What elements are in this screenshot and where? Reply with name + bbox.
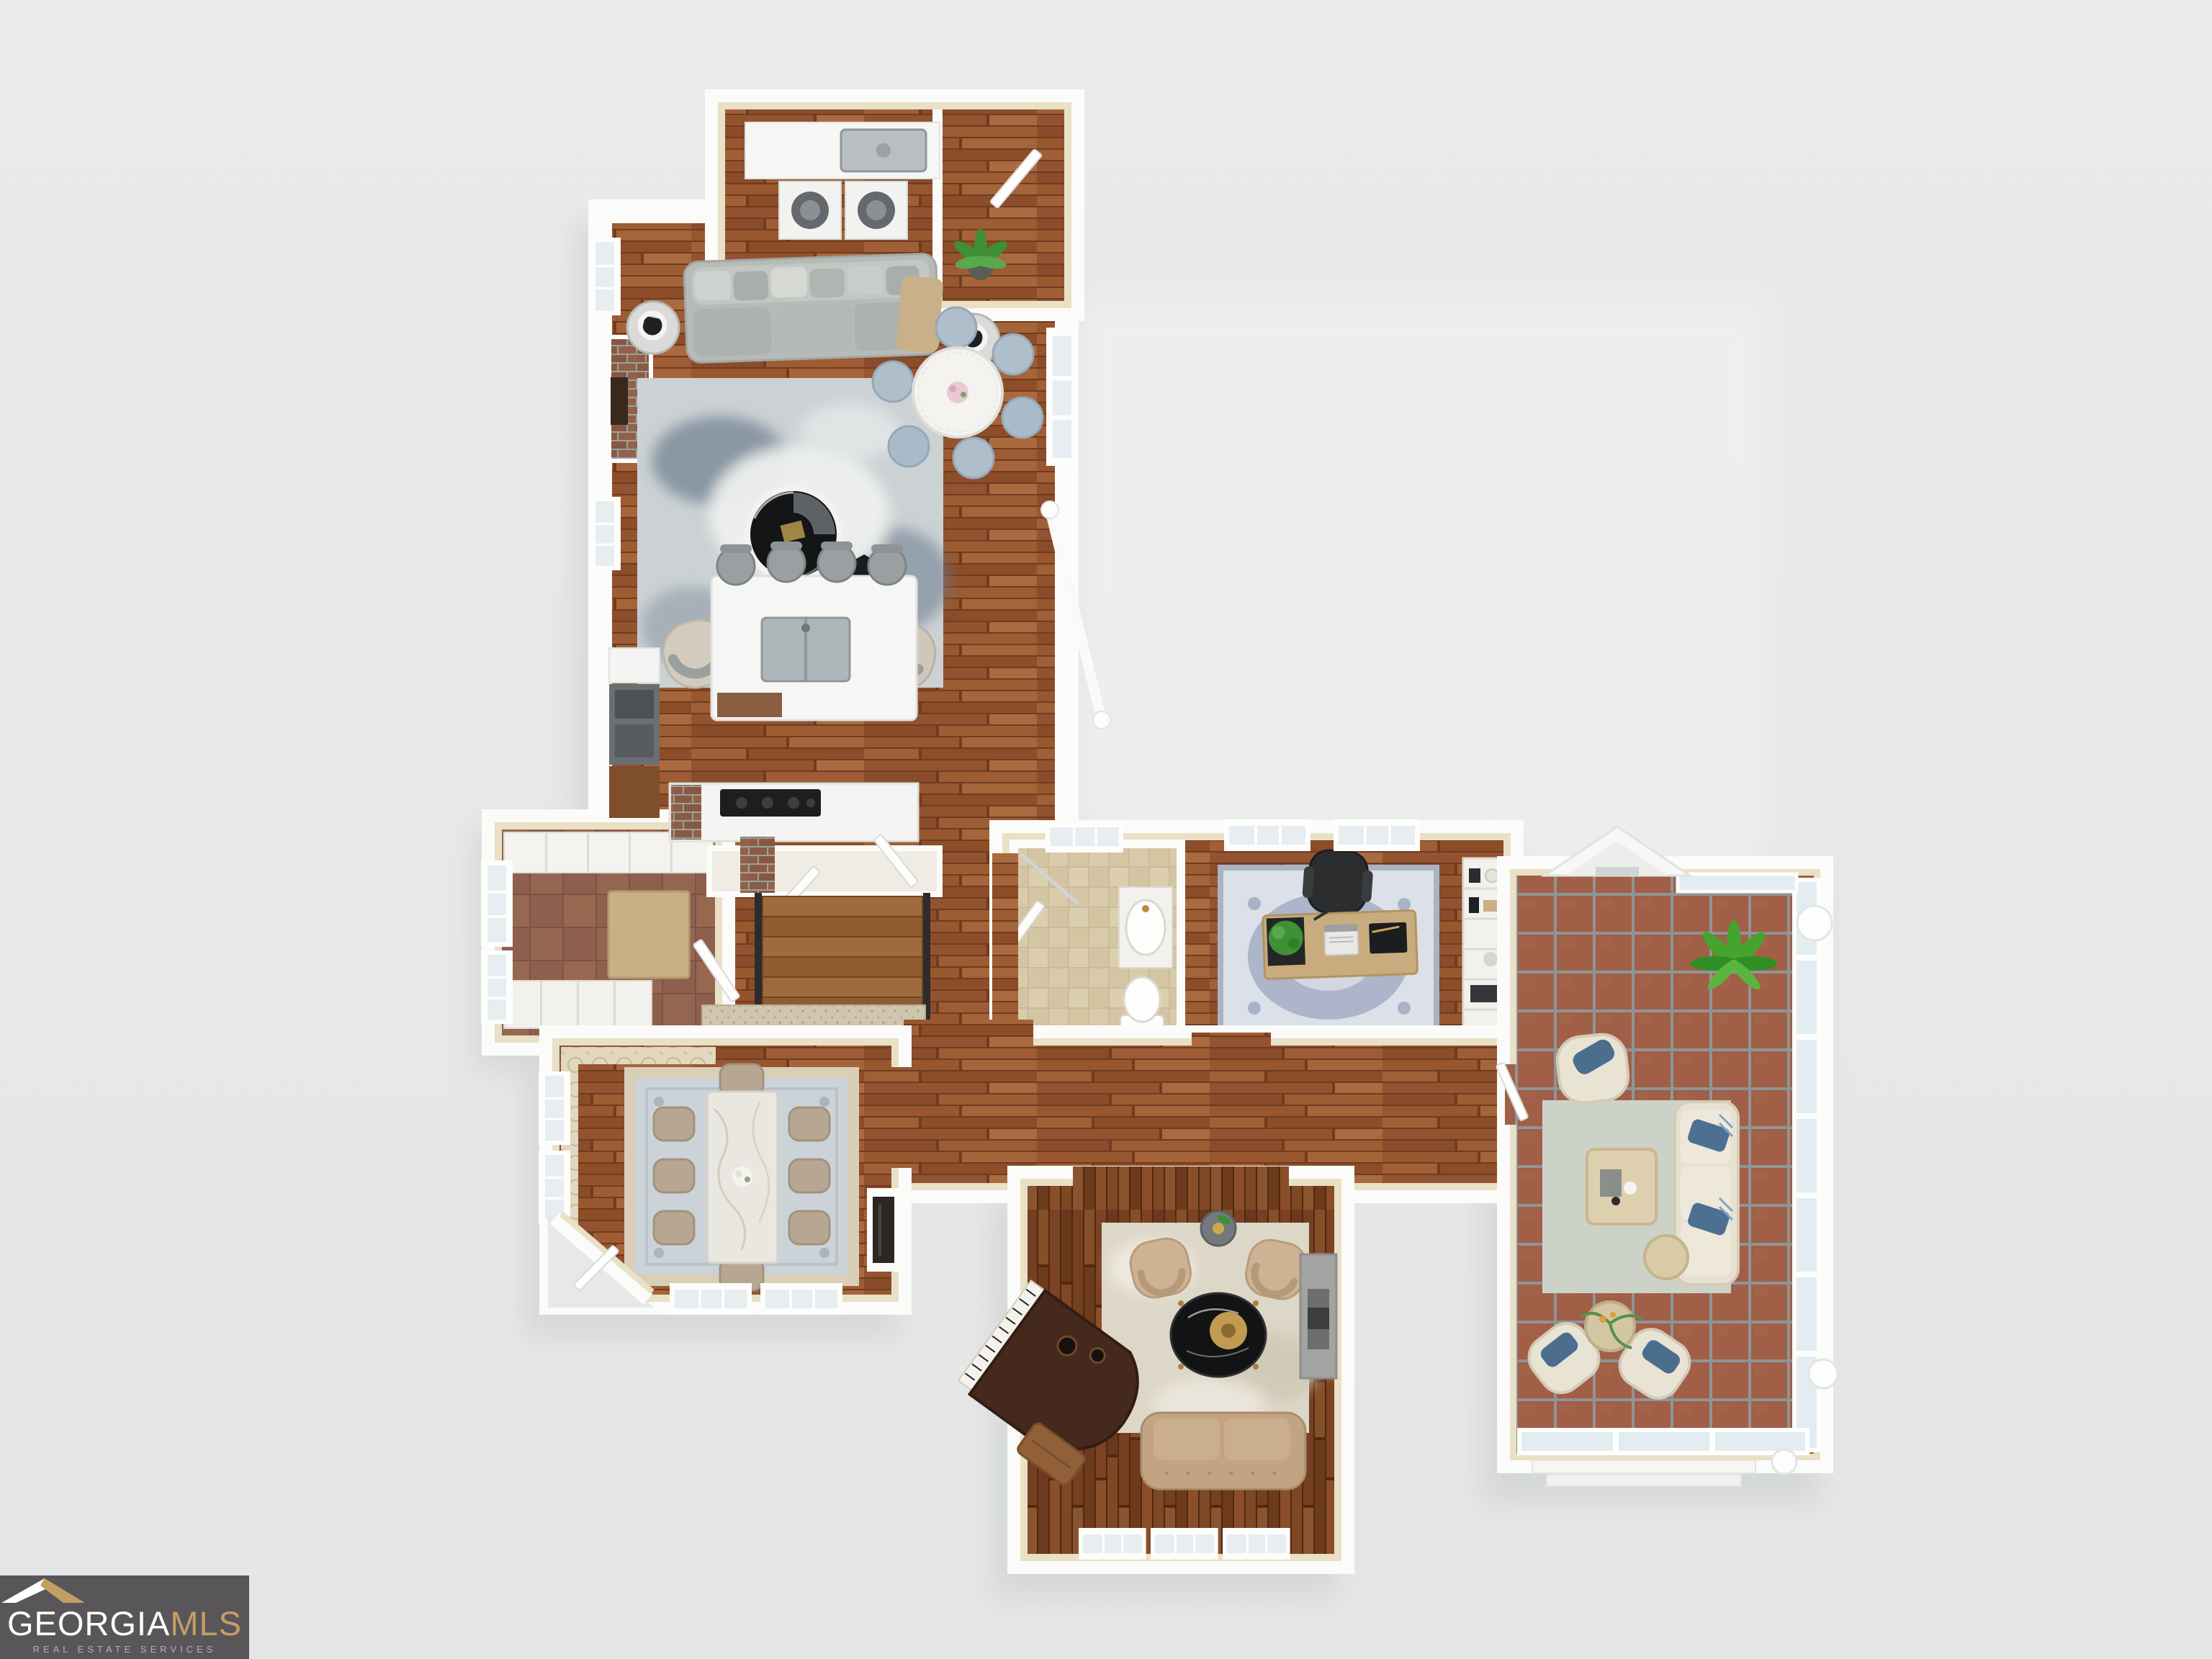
office-window	[1224, 819, 1310, 851]
dining-window	[539, 1151, 570, 1224]
room-music	[956, 1172, 1348, 1568]
dining-fireplace	[867, 1188, 900, 1272]
mudroom-window	[481, 860, 513, 947]
dining-table	[707, 1092, 778, 1263]
stair-brick-wall	[740, 837, 775, 893]
opening-dining-hall	[878, 1067, 914, 1168]
kitchen-island	[711, 576, 917, 720]
brand-line: GEORGIAMLS	[7, 1606, 242, 1640]
lamp-side-table	[627, 302, 679, 354]
music-window-south	[1223, 1528, 1290, 1560]
georgia-mls-watermark: GEORGIAMLS REAL ESTATE SERVICES	[0, 1575, 249, 1659]
mudroom-window	[481, 950, 513, 1024]
bath-window	[1046, 821, 1123, 853]
music-coffee-table	[1171, 1293, 1266, 1377]
laptop	[1324, 924, 1358, 956]
kitchen-counter-south	[670, 783, 918, 841]
washer	[779, 181, 841, 239]
kitchen-wood-cabinet	[609, 766, 660, 818]
dining-centerpiece	[732, 1166, 752, 1187]
sunroom-armchair	[1555, 1032, 1630, 1105]
music-sofa	[1141, 1413, 1305, 1489]
brand-primary: GEORGIA	[7, 1606, 170, 1640]
living-window-right	[1046, 328, 1078, 466]
floor-plan-render: GEORGIAMLS REAL ESTATE SERVICES	[0, 0, 2212, 1659]
music-window-south	[1151, 1528, 1218, 1560]
brand-tagline: REAL ESTATE SERVICES	[33, 1644, 217, 1655]
living-window	[589, 238, 621, 315]
sunroom-steps	[1532, 1460, 1755, 1486]
room-formal-dining	[539, 1032, 905, 1315]
music-window-south	[1079, 1528, 1146, 1560]
living-firebox	[611, 377, 628, 425]
office-window	[1334, 819, 1420, 851]
living-window	[589, 497, 621, 570]
opening-hall-wing	[992, 853, 1018, 1038]
brand-secondary: MLS	[170, 1606, 242, 1640]
room-sunroom	[1496, 827, 1838, 1486]
dryer	[845, 181, 907, 239]
dining-window	[539, 1071, 570, 1145]
desk-mat	[1369, 922, 1407, 954]
room-mudroom-entry	[481, 816, 740, 1049]
island-wood-panel	[717, 693, 782, 717]
kitchen-wall-appliances	[609, 648, 660, 818]
sunroom-coffee-table	[1587, 1149, 1656, 1224]
dining-window-south	[760, 1283, 842, 1315]
mudroom-console-table	[608, 891, 689, 978]
roof-icon	[0, 1577, 88, 1604]
throw-blanket	[896, 275, 944, 354]
dining-window-south	[670, 1283, 752, 1315]
music-side-table	[1201, 1211, 1236, 1246]
opening-hall-music	[1073, 1166, 1289, 1207]
opening-hall-south	[904, 1020, 1033, 1061]
dining-wallpaper-top	[561, 1047, 716, 1064]
floor-plan-svg	[0, 0, 2212, 1659]
living-sofa	[684, 253, 947, 363]
opening-office-hall	[1192, 1033, 1271, 1071]
brick-chimney	[671, 785, 701, 840]
powder-bath	[1001, 821, 1181, 1050]
music-fireplace	[1300, 1254, 1336, 1378]
